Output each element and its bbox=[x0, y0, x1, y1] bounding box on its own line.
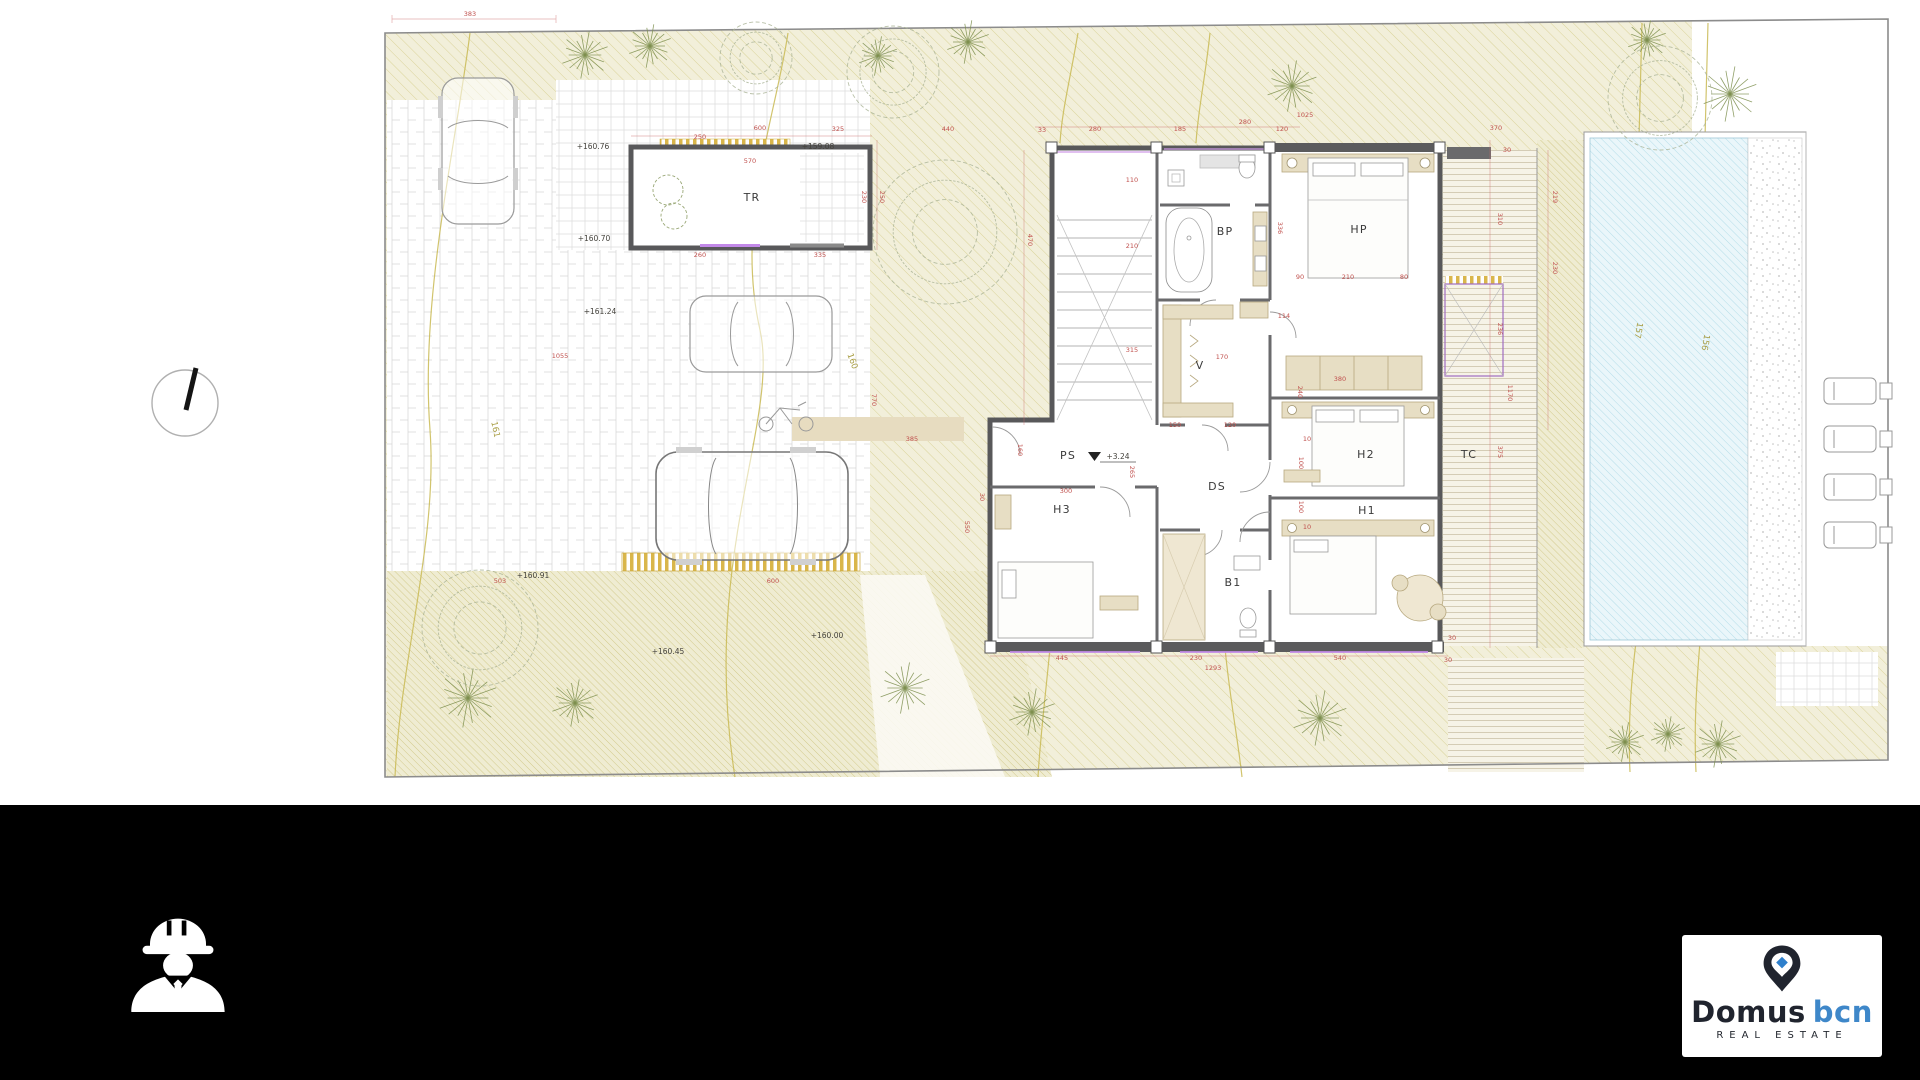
dimension-label: 315 bbox=[1126, 346, 1138, 354]
level-label: +161.24 bbox=[584, 307, 617, 316]
engineer-icon bbox=[122, 900, 234, 1012]
dimension-label: 10 bbox=[1303, 523, 1311, 531]
dimension-label: 265 bbox=[1128, 466, 1136, 478]
dimension-label: 210 bbox=[1342, 273, 1354, 281]
dimension-label: 770 bbox=[870, 394, 878, 406]
dimension-label: 250 bbox=[694, 133, 706, 141]
dimension-label: 30 bbox=[1503, 146, 1511, 154]
dimension-label: 33 bbox=[1038, 126, 1046, 134]
dimension-label: 280 bbox=[1239, 118, 1251, 126]
dimension-label: 80 bbox=[1400, 273, 1408, 281]
room-label: HP bbox=[1350, 223, 1367, 236]
footer-band: Domusbcn REAL ESTATE bbox=[0, 805, 1920, 1080]
dimension-label: 375 bbox=[1496, 446, 1504, 458]
dimension-label: 30 bbox=[1448, 634, 1456, 642]
dimension-label: 114 bbox=[1278, 312, 1290, 320]
dimension-label: 325 bbox=[832, 125, 844, 133]
dimension-label: 370 bbox=[1490, 124, 1502, 132]
level-label: +160.45 bbox=[652, 647, 685, 656]
swimming-pool bbox=[1584, 132, 1806, 646]
dimension-label: 380 bbox=[1334, 375, 1346, 383]
dimension-label: 90 bbox=[1296, 273, 1304, 281]
dimension-label: 280 bbox=[1089, 125, 1101, 133]
room-label: DS bbox=[1208, 480, 1226, 493]
dimension-label: 30 bbox=[1444, 656, 1452, 664]
dimension-label: 1293 bbox=[1205, 664, 1222, 672]
room-label: TC bbox=[1460, 448, 1477, 461]
room-label: TR bbox=[743, 191, 761, 204]
dimension-label: 336 bbox=[1276, 222, 1284, 234]
room-label: BP bbox=[1217, 225, 1234, 238]
dimension-label: 110 bbox=[1126, 176, 1138, 184]
brand-logo: Domusbcn REAL ESTATE bbox=[1682, 935, 1882, 1057]
page: TRBPHPVDSH2TCH1H3B1PS3831055600325250570… bbox=[0, 0, 1920, 1080]
dimension-label: 120 bbox=[1276, 125, 1288, 133]
level-label: +160.00 bbox=[811, 631, 844, 640]
dimension-label: 250 bbox=[878, 191, 886, 203]
car bbox=[690, 296, 832, 372]
dimension-label: 550 bbox=[963, 521, 971, 533]
dimension-label: 310 bbox=[1496, 213, 1504, 225]
dimension-label: 100 bbox=[1297, 501, 1305, 513]
north-arrow-icon bbox=[152, 368, 218, 436]
dimension-label: 300 bbox=[1060, 487, 1072, 495]
level-label: +160.76 bbox=[577, 142, 610, 151]
brand-secondary: bcn bbox=[1813, 995, 1873, 1029]
dimension-label: 1025 bbox=[1297, 111, 1314, 119]
dimension-label: 100 bbox=[1297, 457, 1305, 469]
dimension-label: 470 bbox=[1026, 234, 1034, 246]
level-label: +159.08 bbox=[802, 142, 835, 151]
dimension-label: 230 bbox=[1551, 262, 1559, 274]
dimension-label: 540 bbox=[1334, 654, 1346, 662]
dimension-label: 30 bbox=[978, 493, 986, 501]
dimension-label: 160 bbox=[1016, 444, 1024, 456]
dimension-label: 236 bbox=[1496, 323, 1504, 335]
brand-tagline: REAL ESTATE bbox=[1716, 1030, 1847, 1041]
level-label: +160.91 bbox=[517, 571, 550, 580]
dimension-label: 385 bbox=[906, 435, 918, 443]
dimension-label: 445 bbox=[1056, 654, 1068, 662]
dimension-label: 219 bbox=[1551, 191, 1559, 203]
room-label: PS bbox=[1060, 449, 1076, 462]
dimension-label: 150 bbox=[1169, 421, 1181, 429]
room-label: B1 bbox=[1225, 576, 1242, 589]
entrance-ramp bbox=[792, 417, 964, 441]
dimension-label: 230 bbox=[1190, 654, 1202, 662]
room-label: H2 bbox=[1357, 448, 1375, 461]
dimension-label: 230 bbox=[860, 191, 868, 203]
brand-wordmark: Domusbcn bbox=[1691, 997, 1873, 1027]
room-label: V bbox=[1196, 359, 1205, 372]
level-label: +3.24 bbox=[1107, 452, 1130, 461]
brand-primary: Domus bbox=[1691, 995, 1806, 1029]
dimension-label: 260 bbox=[694, 251, 706, 259]
dimension-label: 210 bbox=[1126, 242, 1138, 250]
dimension-label: 600 bbox=[754, 124, 766, 132]
dimension-label: 335 bbox=[814, 251, 826, 259]
car bbox=[438, 78, 518, 224]
dimension-label: 1170 bbox=[1506, 385, 1514, 402]
dimension-label: 600 bbox=[767, 577, 779, 585]
dimension-label: 503 bbox=[494, 577, 506, 585]
dimension-label: 1055 bbox=[552, 352, 569, 360]
room-label: H3 bbox=[1053, 503, 1071, 516]
level-label: +160.70 bbox=[578, 234, 611, 243]
dimension-label: 170 bbox=[1216, 353, 1228, 361]
dimension-label: 10 bbox=[1303, 435, 1311, 443]
dimension-label: 440 bbox=[942, 125, 954, 133]
car bbox=[656, 447, 848, 565]
dimension-label: 240 bbox=[1296, 386, 1304, 398]
site-plan-drawing: TRBPHPVDSH2TCH1H3B1PS3831055600325250570… bbox=[0, 0, 1920, 805]
dimension-label: 185 bbox=[1174, 125, 1186, 133]
map-pin-icon bbox=[1759, 941, 1805, 997]
dimension-label: 383 bbox=[464, 10, 476, 18]
tile-path bbox=[1776, 652, 1878, 706]
dimension-label: 570 bbox=[744, 157, 756, 165]
room-label: H1 bbox=[1358, 504, 1376, 517]
dimension-label: 120 bbox=[1224, 421, 1236, 429]
site-plan: TRBPHPVDSH2TCH1H3B1PS3831055600325250570… bbox=[0, 0, 1920, 805]
main-house bbox=[985, 142, 1537, 653]
